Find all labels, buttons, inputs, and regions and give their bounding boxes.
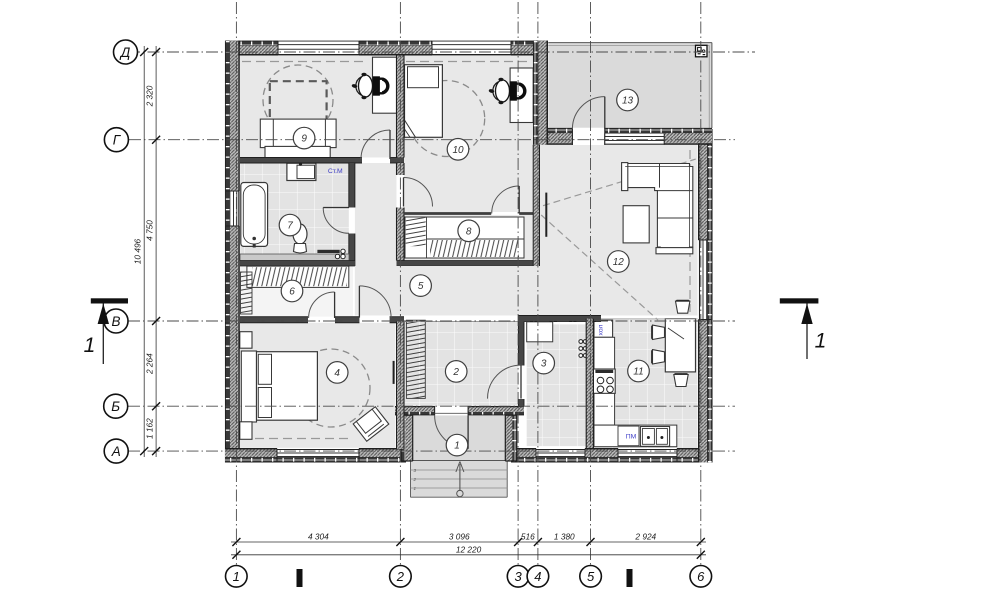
svg-text:Д: Д — [119, 45, 131, 60]
svg-text:8: 8 — [466, 226, 472, 237]
svg-text:1 162: 1 162 — [145, 418, 155, 439]
svg-text:1 380: 1 380 — [554, 532, 575, 542]
svg-text:В: В — [111, 314, 120, 329]
svg-text:хол: хол — [598, 325, 605, 336]
svg-text:2 924: 2 924 — [634, 532, 656, 542]
svg-text:4 750: 4 750 — [145, 220, 155, 241]
svg-text:5: 5 — [418, 281, 424, 292]
svg-text:2: 2 — [452, 367, 459, 378]
svg-text:Б: Б — [111, 399, 120, 414]
svg-text:11: 11 — [633, 367, 643, 378]
svg-text:4: 4 — [334, 368, 340, 379]
svg-text:7: 7 — [287, 221, 293, 232]
svg-text:1: 1 — [84, 334, 96, 357]
svg-text:Ст.М: Ст.М — [328, 168, 343, 175]
svg-text:3: 3 — [514, 569, 522, 584]
svg-text:2: 2 — [413, 477, 417, 482]
svg-text:10: 10 — [452, 145, 464, 156]
svg-text:13: 13 — [622, 96, 634, 107]
svg-text:516: 516 — [521, 532, 535, 542]
svg-text:ПМ: ПМ — [626, 433, 637, 440]
svg-text:2 264: 2 264 — [145, 353, 155, 375]
svg-text:3 096: 3 096 — [449, 532, 470, 542]
svg-text:12: 12 — [613, 257, 625, 268]
svg-text:А: А — [111, 444, 121, 459]
svg-text:9: 9 — [301, 134, 307, 145]
svg-text:1: 1 — [815, 330, 827, 353]
svg-text:5: 5 — [587, 569, 595, 584]
svg-text:6: 6 — [697, 569, 705, 584]
svg-text:2: 2 — [396, 569, 405, 584]
svg-text:6: 6 — [289, 287, 295, 298]
svg-text:1: 1 — [233, 569, 240, 584]
svg-text:1: 1 — [454, 441, 460, 452]
svg-text:2 320: 2 320 — [145, 85, 155, 107]
svg-text:4 304: 4 304 — [308, 532, 329, 542]
svg-text:10 496: 10 496 — [133, 238, 143, 264]
svg-text:12 220: 12 220 — [456, 544, 482, 554]
svg-text:3: 3 — [541, 359, 547, 370]
svg-text:4: 4 — [534, 569, 541, 584]
